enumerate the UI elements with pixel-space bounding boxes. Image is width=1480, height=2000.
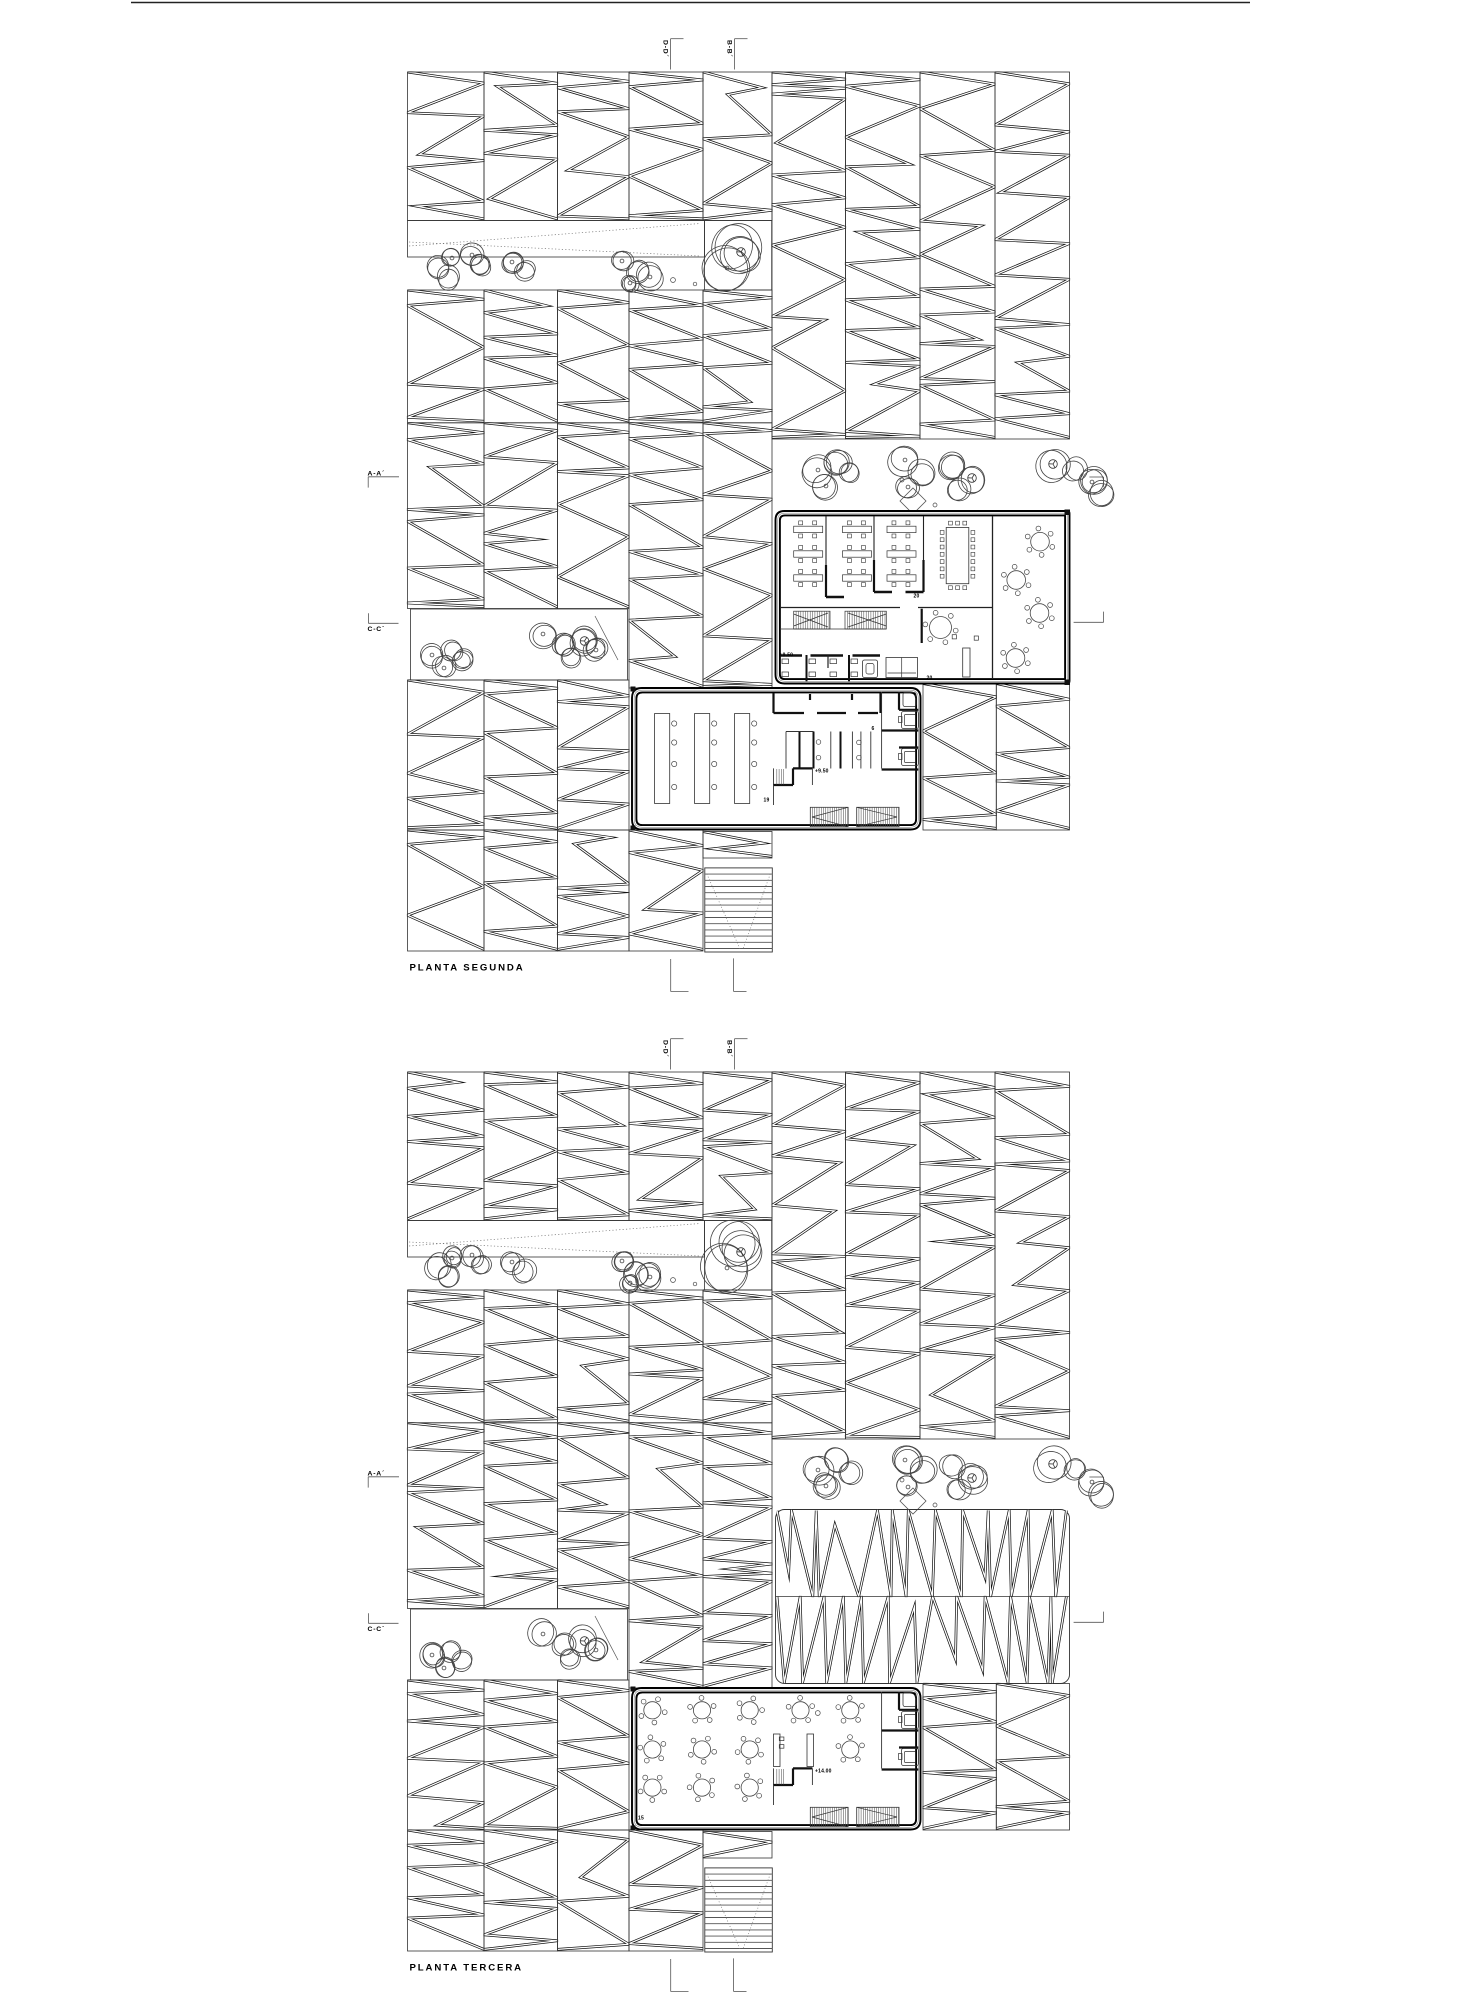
svg-text:+9.50: +9.50 — [780, 653, 794, 659]
svg-text:D-D´: D-D´ — [662, 40, 669, 58]
svg-text:+14.00: +14.00 — [815, 1769, 832, 1775]
svg-text:A-A´: A-A´ — [368, 470, 386, 477]
svg-text:B-B´: B-B´ — [726, 1040, 733, 1058]
svg-text:19: 19 — [764, 798, 770, 804]
svg-text:20: 20 — [914, 594, 920, 600]
svg-text:+9.50: +9.50 — [815, 769, 829, 775]
svg-text:15: 15 — [638, 1816, 644, 1822]
svg-text:A-A´: A-A´ — [368, 1470, 386, 1477]
svg-text:20: 20 — [927, 676, 933, 682]
svg-text:C-C´: C-C´ — [368, 1626, 386, 1633]
svg-text:B-B´: B-B´ — [726, 40, 733, 58]
svg-text:6: 6 — [872, 726, 875, 732]
svg-text:PLANTA SEGUNDA: PLANTA SEGUNDA — [410, 963, 525, 974]
svg-text:PLANTA TERCERA: PLANTA TERCERA — [410, 1963, 523, 1974]
svg-text:C-C´: C-C´ — [368, 626, 386, 633]
svg-text:D-D´: D-D´ — [662, 1040, 669, 1058]
